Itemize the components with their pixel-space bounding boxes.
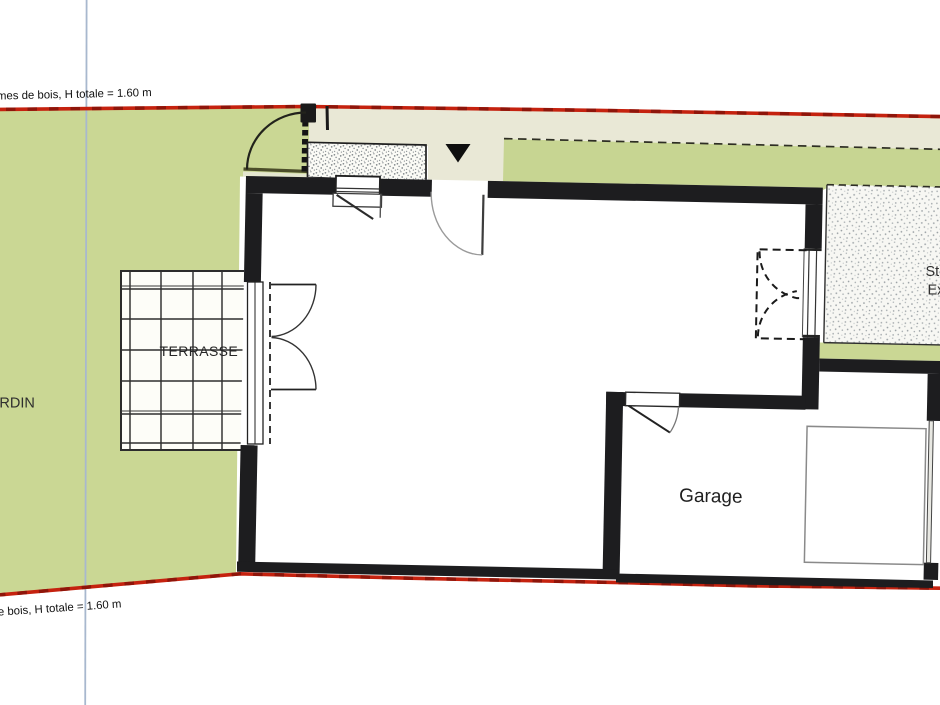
svg-text:TERRASSE: TERRASSE [160, 343, 239, 359]
svg-text:JARDIN: JARDIN [0, 396, 35, 412]
svg-text:Ext: Ext [928, 283, 940, 299]
svg-text:Garage: Garage [679, 486, 743, 508]
svg-text:Sta: Sta [926, 264, 940, 280]
